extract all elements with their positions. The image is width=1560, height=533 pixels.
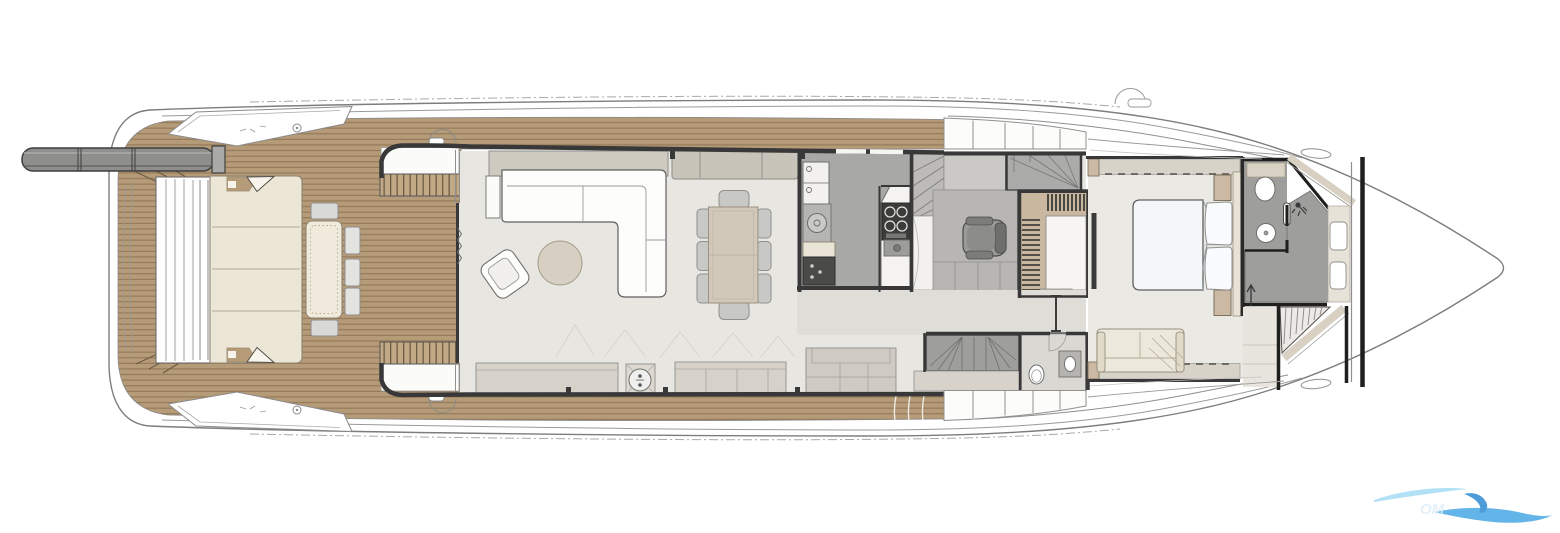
svg-text:OM: OM — [1420, 501, 1445, 518]
